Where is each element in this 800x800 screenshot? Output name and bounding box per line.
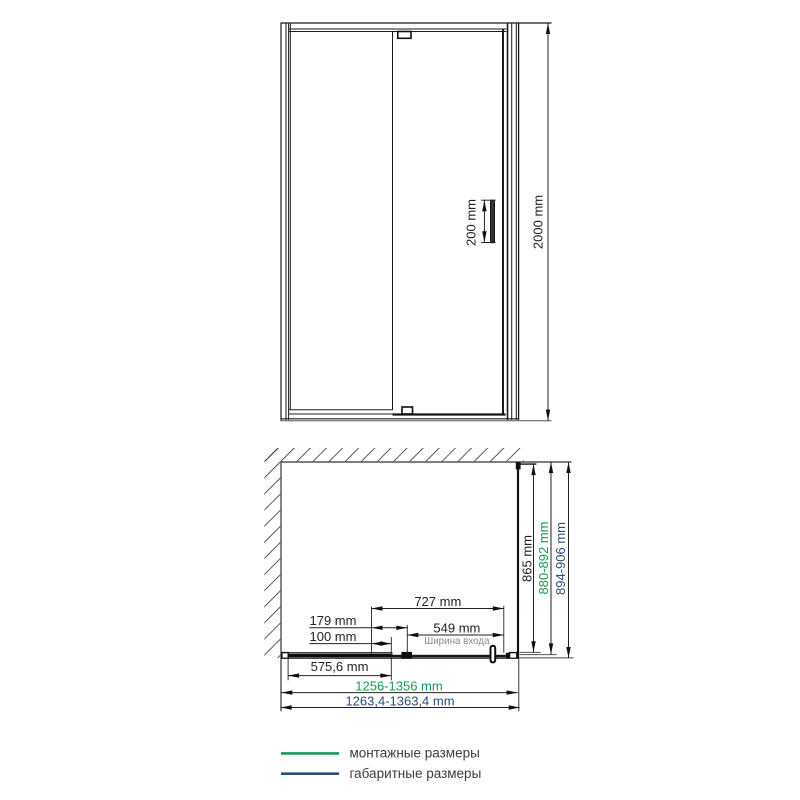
- svg-text:727 mm: 727 mm: [414, 594, 461, 609]
- svg-text:179 mm: 179 mm: [310, 613, 357, 628]
- svg-text:2000 mm: 2000 mm: [530, 195, 545, 249]
- svg-text:монтажные размеры: монтажные размеры: [350, 746, 480, 761]
- svg-text:Ширина входа: Ширина входа: [424, 636, 490, 647]
- svg-text:865 mm: 865 mm: [520, 535, 535, 582]
- svg-text:1256-1356 mm: 1256-1356 mm: [355, 679, 442, 694]
- svg-text:1263,4-1363,4 mm: 1263,4-1363,4 mm: [345, 693, 454, 708]
- svg-text:100 mm: 100 mm: [310, 629, 357, 644]
- svg-text:880-892 mm: 880-892 mm: [536, 522, 551, 595]
- svg-text:894-906 mm: 894-906 mm: [553, 522, 568, 595]
- svg-text:549 mm: 549 mm: [433, 621, 480, 636]
- svg-text:575,6 mm: 575,6 mm: [311, 659, 369, 674]
- svg-text:200 mm: 200 mm: [464, 199, 479, 246]
- svg-text:габаритные размеры: габаритные размеры: [350, 766, 482, 781]
